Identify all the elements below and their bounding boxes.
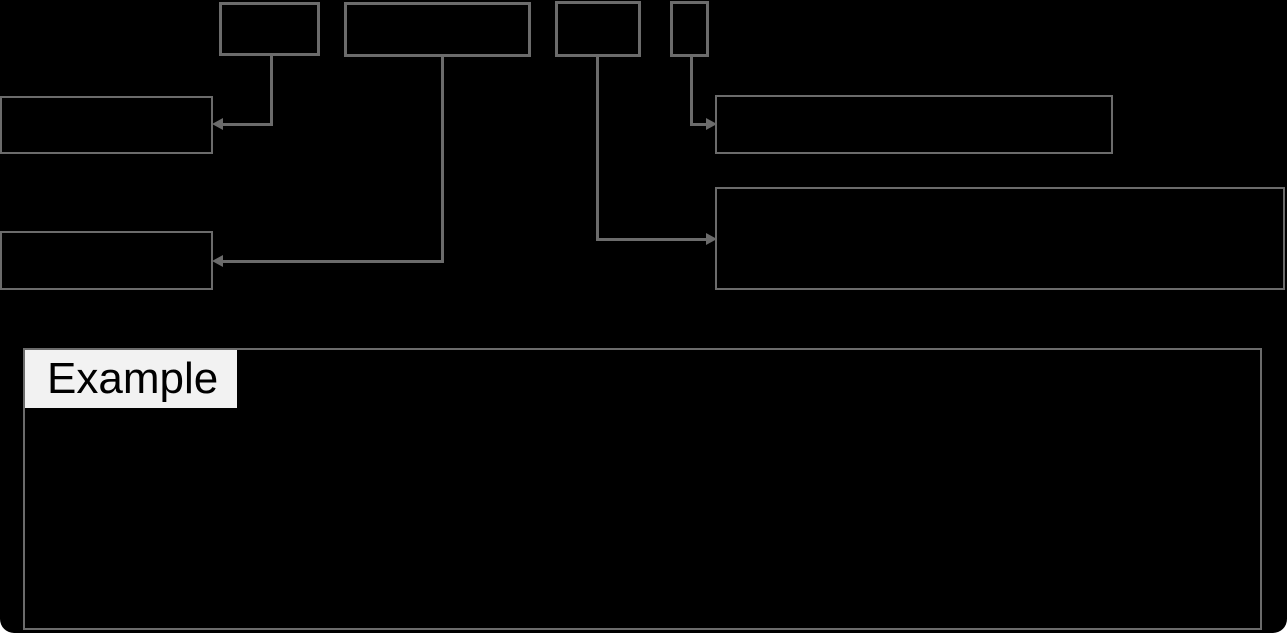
slide-canvas: Example	[0, 0, 1287, 633]
annotation-box-bottom-right-label	[717, 189, 1283, 288]
token-box-4	[670, 1, 709, 57]
annotation-box-top-right-label	[717, 97, 1111, 152]
arrowhead-right-icon	[706, 118, 717, 130]
annotation-box-top-left-label	[2, 98, 211, 152]
connector-3-horizontal-line	[596, 238, 706, 241]
connector-4-vertical-line	[690, 57, 693, 126]
annotation-box-bottom-left-label	[2, 233, 211, 288]
annotation-box-bottom-left	[0, 231, 213, 290]
token-box-3-label	[558, 4, 638, 54]
arrowhead-left-icon	[212, 255, 223, 267]
connector-3-vertical-line	[596, 57, 599, 241]
connector-4-horizontal-line	[690, 123, 706, 126]
token-box-1	[219, 2, 320, 56]
annotation-box-top-left	[0, 96, 213, 154]
annotation-box-bottom-right	[715, 187, 1285, 290]
token-box-3	[555, 1, 641, 57]
connector-2-horizontal-line	[222, 260, 444, 263]
example-section-title: Example	[25, 350, 237, 408]
annotation-box-top-right	[715, 95, 1113, 154]
token-box-1-label	[222, 5, 317, 53]
token-box-2-label	[347, 5, 528, 54]
arrowhead-right-icon	[706, 233, 717, 245]
token-box-2	[344, 2, 531, 57]
token-box-4-label	[673, 4, 706, 54]
connector-2-vertical-line	[441, 57, 444, 263]
arrowhead-left-icon	[212, 118, 223, 130]
connector-1-vertical-line	[270, 55, 273, 125]
connector-1-horizontal-line	[222, 123, 273, 126]
